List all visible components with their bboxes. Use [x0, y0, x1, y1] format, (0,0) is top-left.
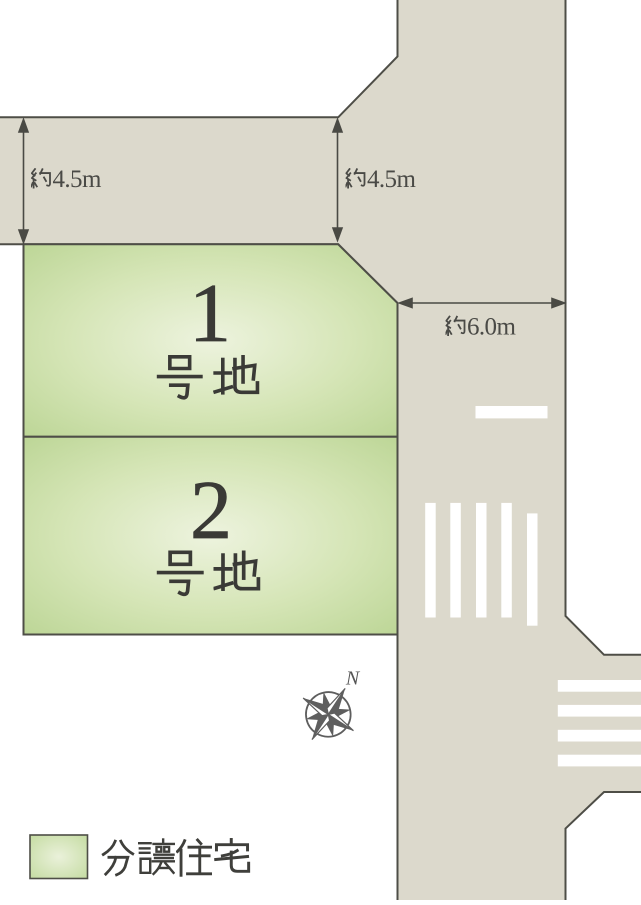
svg-text:1: 1 — [189, 267, 231, 360]
svg-text:N: N — [345, 668, 361, 690]
svg-text:4.5m: 4.5m — [367, 166, 416, 193]
svg-text:4.5m: 4.5m — [53, 166, 102, 193]
svg-text:2: 2 — [190, 464, 232, 557]
svg-text:6.0m: 6.0m — [467, 314, 516, 341]
